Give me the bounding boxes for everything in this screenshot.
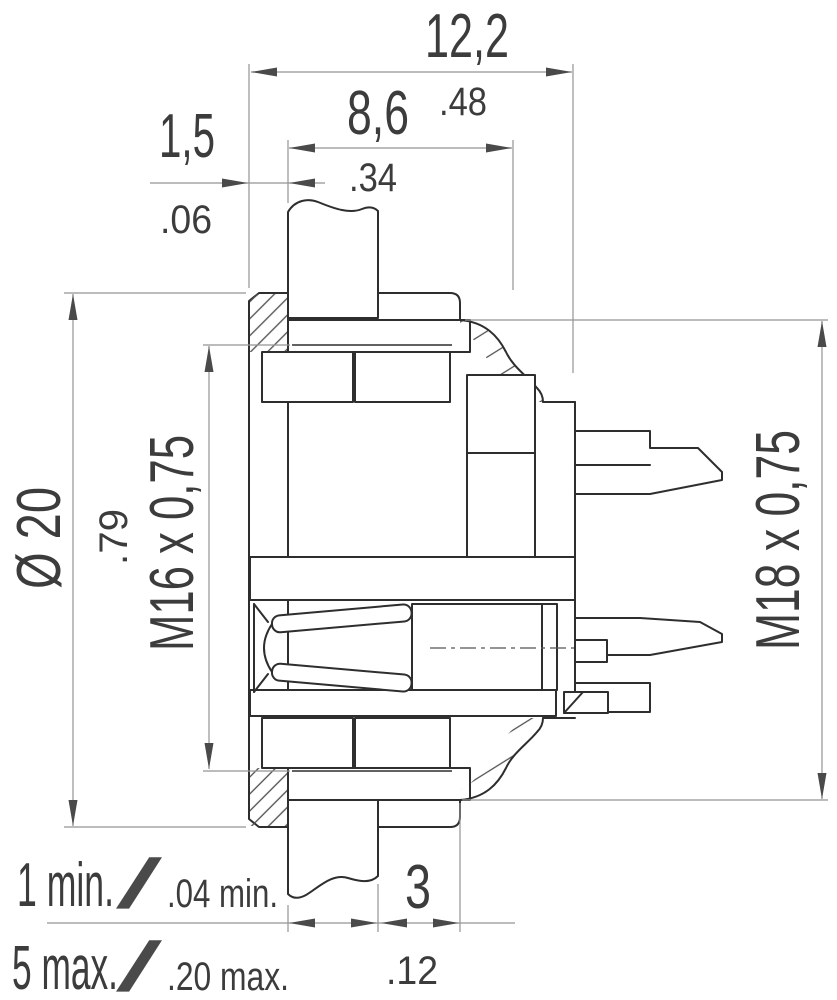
insulator-block-front-bottom-2 [355,718,450,768]
contact-sleeve [412,604,557,690]
panel-tab-bottom [288,800,378,898]
arrow-flange-left [222,179,248,188]
label-flange-in: .06 [160,198,212,242]
arrow-panel-left [289,919,315,928]
arrow-flange-right [289,179,315,188]
arrow-m18-top [818,321,827,347]
label-panel-min-in: .04 min. [167,872,278,916]
arrow-m16-top [205,346,214,372]
insulator-block-front-bottom-1 [262,718,353,768]
label-panel-min-mm: 1 min. [17,851,114,920]
insulator-block-rear [467,375,535,557]
label-diameter-mm: Ø 20 [5,487,74,589]
arrow-front-left [289,144,315,153]
contact-spring-finger-lower [271,663,412,692]
flange-hatch-top [250,294,287,352]
arrow-gap-right [433,919,459,928]
label-thread-rear: M18 x 0,75 [744,430,813,650]
label-front-mm: 8,6 [347,79,409,148]
label-front-in: .34 [349,156,397,200]
label-diameter-in: .79 [92,509,136,565]
socket-contact [254,604,592,692]
arrow-gap-left [381,919,407,928]
arrow-dia-bottom [69,800,78,826]
label-gap-in: .12 [386,949,438,993]
connector-cross-section-drawing: 12,2 .48 8,6 .34 1,5 .06 Ø 20 .79 M16 x … [0,0,837,1000]
label-overall-in: .48 [439,80,487,124]
label-gap-mm: 3 [405,853,431,922]
connector-body [249,200,722,898]
shell-band-top-inner [288,320,470,352]
dimension-labels: 12,2 .48 8,6 .34 1,5 .06 Ø 20 .79 M16 x … [5,2,813,1000]
insulator-block-front-top-2 [355,352,450,402]
panel-tab-top [288,200,378,318]
arrow-m16-bottom [205,743,214,769]
rear-step-chamfer [564,692,608,713]
mid-band-upper [250,557,575,600]
arrow-front-right [486,144,512,153]
label-flange-mm: 1,5 [159,102,215,171]
arrow-dia-top [69,294,78,320]
label-panel-max-slash: / [116,928,163,1000]
label-overall-mm: 12,2 [425,2,509,71]
label-panel-min-slash: / [116,845,163,923]
insulator-block-front-top-1 [262,352,353,402]
arrow-overall-right [546,68,572,77]
flange-hatch-bottom [250,768,287,826]
label-panel-max-mm: 5 max. [12,934,118,1000]
label-thread-front: M16 x 0,75 [138,435,207,651]
shell-band-bottom-inner [288,768,470,800]
arrow-overall-left [251,68,277,77]
backshell-curve-bottom-hatch [460,718,543,800]
solder-lug-upper [575,431,722,494]
arrow-panel-right [351,919,377,928]
solder-lug-lower-root [575,640,607,662]
arrow-m18-bottom [818,773,827,799]
contact-spring-finger-upper [271,604,412,633]
label-panel-max-in: .20 max. [167,955,289,999]
mid-band-lower [250,690,556,716]
technical-drawing-page: 12,2 .48 8,6 .34 1,5 .06 Ø 20 .79 M16 x … [0,0,837,1000]
